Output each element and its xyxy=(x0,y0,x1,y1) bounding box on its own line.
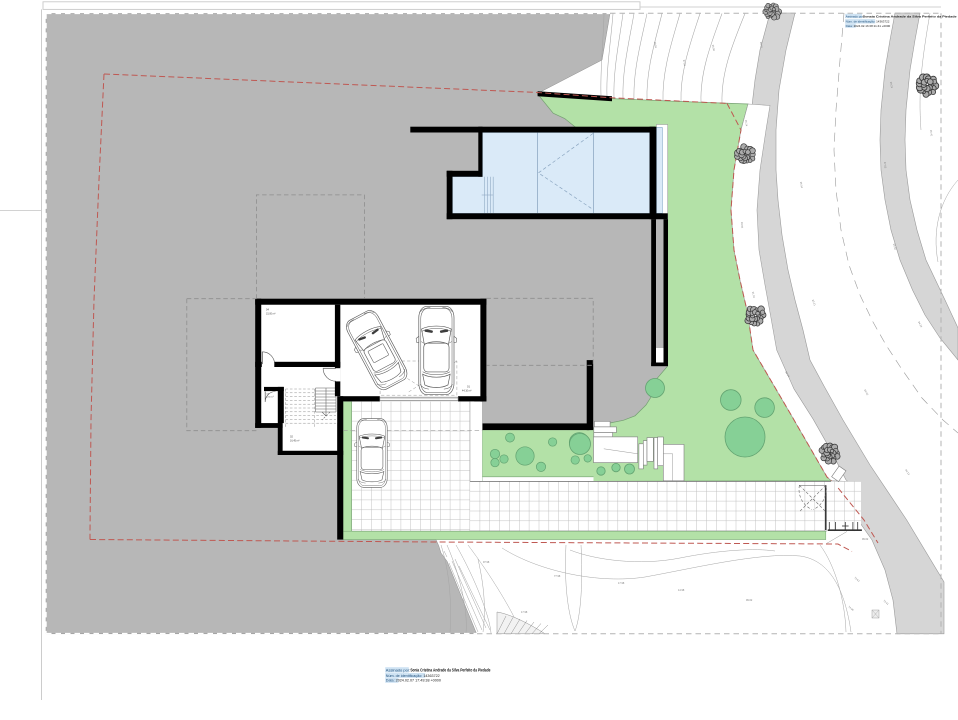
svg-text:Assinado por:: Assinado por: xyxy=(386,668,410,673)
svg-text:93.21: 93.21 xyxy=(811,299,816,306)
svg-text:94.24: 94.24 xyxy=(917,321,923,328)
svg-text:17.98: 17.98 xyxy=(521,611,528,614)
svg-text:Sonia Cristina Andrade da Silv: Sonia Cristina Andrade da Silva Perfeito… xyxy=(410,668,491,673)
svg-text:Data: 2024.02.07 17:49:38 +000: Data: 2024.02.07 17:49:38 +0000 xyxy=(386,679,441,683)
svg-text:2,60 m²: 2,60 m² xyxy=(267,396,274,399)
svg-text:Núm. de identificação: 1436372: Núm. de identificação: 14363722 xyxy=(386,674,440,678)
svg-text:92.42: 92.42 xyxy=(863,389,869,396)
svg-text:75.41: 75.41 xyxy=(882,599,889,606)
svg-text:96.41: 96.41 xyxy=(929,130,933,137)
svg-text:98.41: 98.41 xyxy=(759,42,763,49)
svg-text:Data: 2024.02.16 08:11:41 +000: Data: 2024.02.16 08:11:41 +0000 xyxy=(846,24,891,28)
svg-text:15,00 m²: 15,00 m² xyxy=(266,312,276,315)
svg-text:95.04: 95.04 xyxy=(799,182,803,189)
svg-text:Sonaia Cristina Andrade da Sil: Sonaia Cristina Andrade da Silva Perfeit… xyxy=(863,14,957,18)
svg-text:95.82: 95.82 xyxy=(892,243,897,250)
svg-text:16,45 m²: 16,45 m² xyxy=(290,439,300,442)
svg-text:74.96: 74.96 xyxy=(847,605,854,612)
svg-text:97.98: 97.98 xyxy=(483,561,490,564)
svg-text:97.50: 97.50 xyxy=(682,60,686,67)
svg-text:99.62: 99.62 xyxy=(862,538,869,541)
svg-text:77.98: 77.98 xyxy=(554,575,561,578)
svg-text:Assinado por:: Assinado por: xyxy=(846,14,865,18)
svg-text:90.12: 90.12 xyxy=(904,469,910,476)
svg-text:96.50: 96.50 xyxy=(711,45,715,52)
svg-text:75.62: 75.62 xyxy=(853,576,860,583)
svg-text:14.98: 14.98 xyxy=(678,589,685,592)
svg-text:99.62: 99.62 xyxy=(746,599,753,602)
svg-text:93.84: 93.84 xyxy=(740,222,743,229)
svg-text:44,10 m²: 44,10 m² xyxy=(462,389,472,392)
svg-text:17.98: 17.98 xyxy=(618,582,625,585)
